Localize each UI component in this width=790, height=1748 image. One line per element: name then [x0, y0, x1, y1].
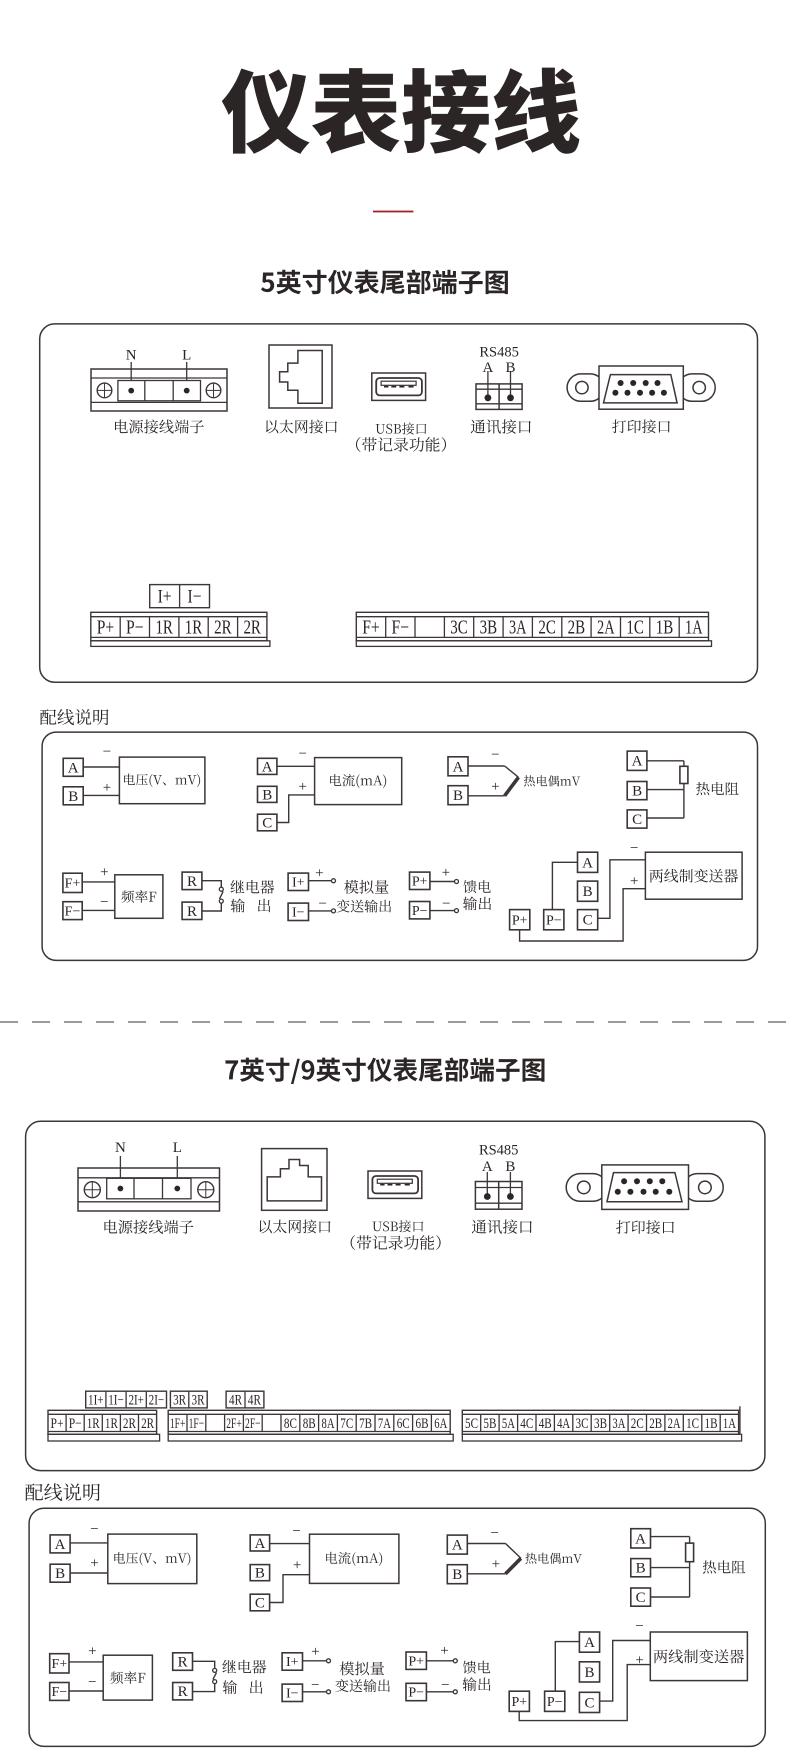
svg-text:7B: 7B: [359, 1416, 372, 1432]
svg-text:−: −: [318, 896, 326, 912]
svg-text:3R: 3R: [192, 1393, 205, 1409]
svg-text:−: −: [311, 1677, 319, 1693]
svg-text:1F−: 1F−: [189, 1416, 205, 1432]
svg-text:+: +: [100, 865, 108, 881]
svg-text:1A: 1A: [723, 1416, 736, 1432]
svg-text:A: A: [452, 1538, 463, 1554]
svg-text:6A: 6A: [434, 1416, 447, 1432]
svg-text:P−: P−: [412, 904, 428, 919]
svg-text:3B: 3B: [594, 1416, 607, 1432]
svg-text:+: +: [440, 1643, 448, 1659]
svg-text:3B: 3B: [480, 617, 498, 639]
svg-text:A: A: [55, 1537, 66, 1553]
svg-text:−: −: [103, 744, 111, 760]
svg-text:B: B: [55, 1566, 65, 1582]
svg-text:N: N: [126, 348, 137, 364]
svg-text:RS485: RS485: [479, 344, 519, 360]
svg-text:1C: 1C: [686, 1416, 699, 1432]
svg-text:−: −: [90, 1521, 98, 1537]
svg-text:2F+: 2F+: [226, 1416, 242, 1432]
svg-text:−: −: [630, 840, 638, 856]
svg-text:F−: F−: [392, 617, 410, 639]
svg-text:P+: P+: [511, 1695, 527, 1710]
svg-text:+: +: [442, 865, 450, 881]
svg-text:1F+: 1F+: [170, 1416, 186, 1432]
svg-text:−: −: [88, 1674, 96, 1690]
svg-text:R: R: [187, 874, 197, 890]
svg-text:8C: 8C: [284, 1416, 297, 1432]
svg-text:R: R: [178, 1684, 188, 1700]
svg-text:F+: F+: [52, 1657, 68, 1672]
svg-text:2A: 2A: [597, 617, 615, 639]
svg-text:P−: P−: [69, 1416, 82, 1432]
svg-text:A: A: [582, 855, 593, 871]
svg-text:−: −: [442, 896, 450, 912]
svg-text:1I+: 1I+: [88, 1392, 104, 1408]
svg-text:−: −: [298, 746, 306, 762]
svg-text:3C: 3C: [450, 617, 468, 639]
svg-text:A: A: [68, 760, 79, 776]
svg-text:P+: P+: [97, 617, 115, 639]
svg-text:A: A: [635, 1531, 646, 1547]
svg-text:I+: I+: [292, 875, 305, 890]
svg-text:P+: P+: [408, 1654, 424, 1669]
svg-text:3A: 3A: [509, 617, 527, 639]
svg-text:C: C: [636, 1590, 646, 1606]
svg-text:4C: 4C: [520, 1416, 533, 1432]
svg-text:2R: 2R: [123, 1416, 136, 1432]
svg-text:A: A: [453, 759, 464, 775]
svg-text:8A: 8A: [322, 1416, 335, 1432]
svg-text:6B: 6B: [416, 1416, 429, 1432]
svg-text:P+: P+: [412, 874, 428, 889]
svg-text:−: −: [441, 1677, 449, 1693]
svg-text:1B: 1B: [656, 617, 674, 639]
svg-text:+: +: [635, 1652, 643, 1668]
svg-text:1A: 1A: [685, 617, 703, 639]
svg-text:+: +: [293, 1557, 301, 1573]
svg-text:B: B: [636, 1561, 646, 1577]
svg-text:B: B: [255, 1566, 265, 1582]
svg-text:3A: 3A: [612, 1416, 625, 1432]
svg-text:+: +: [315, 865, 323, 881]
svg-text:I−: I−: [286, 1686, 299, 1701]
svg-text:A: A: [482, 360, 493, 376]
svg-text:−: −: [490, 1525, 498, 1541]
svg-text:5A: 5A: [502, 1416, 515, 1432]
svg-text:−: −: [292, 1523, 300, 1539]
svg-text:+: +: [311, 1644, 319, 1660]
svg-text:1R: 1R: [185, 617, 203, 639]
svg-text:P−: P−: [408, 1686, 424, 1701]
svg-text:A: A: [632, 754, 643, 770]
svg-text:A: A: [584, 1635, 595, 1651]
svg-text:1B: 1B: [705, 1416, 718, 1432]
svg-text:−: −: [100, 894, 108, 910]
svg-text:2R: 2R: [214, 617, 232, 639]
svg-text:C: C: [262, 816, 272, 832]
svg-text:6C: 6C: [397, 1416, 410, 1432]
svg-text:2I+: 2I+: [128, 1392, 144, 1408]
svg-text:2C: 2C: [538, 617, 556, 639]
svg-text:5C: 5C: [465, 1416, 478, 1432]
svg-text:P+: P+: [51, 1416, 64, 1432]
svg-text:C: C: [583, 913, 593, 929]
svg-text:3R: 3R: [173, 1393, 186, 1409]
svg-text:2R: 2R: [243, 617, 261, 639]
svg-text:8B: 8B: [303, 1416, 316, 1432]
svg-text:5B: 5B: [483, 1416, 496, 1432]
svg-text:B: B: [453, 788, 463, 804]
svg-text:B: B: [583, 884, 593, 900]
svg-text:−: −: [491, 747, 499, 763]
svg-text:2F−: 2F−: [245, 1416, 261, 1432]
svg-text:+: +: [492, 1557, 500, 1573]
svg-text:I+: I+: [286, 1655, 299, 1670]
svg-text:+: +: [491, 779, 499, 795]
svg-text:2B: 2B: [649, 1416, 662, 1432]
svg-text:3C: 3C: [576, 1416, 589, 1432]
svg-text:4R: 4R: [248, 1393, 261, 1409]
svg-text:2R: 2R: [141, 1416, 154, 1432]
svg-text:1R: 1R: [105, 1416, 118, 1432]
svg-text:B: B: [505, 360, 515, 376]
svg-text:F+: F+: [362, 617, 380, 639]
svg-text:B: B: [584, 1665, 594, 1681]
svg-text:1R: 1R: [155, 617, 173, 639]
svg-text:7A: 7A: [378, 1416, 391, 1432]
svg-text:+: +: [298, 779, 306, 795]
svg-text:4B: 4B: [539, 1416, 552, 1432]
svg-text:C: C: [584, 1695, 594, 1711]
svg-text:B: B: [68, 789, 78, 805]
svg-text:1I−: 1I−: [108, 1392, 124, 1408]
svg-text:I−: I−: [188, 586, 202, 607]
svg-text:L: L: [182, 348, 191, 364]
svg-text:F+: F+: [65, 877, 81, 892]
svg-text:P−: P−: [546, 913, 562, 928]
svg-text:+: +: [90, 1555, 98, 1571]
svg-text:P+: P+: [512, 913, 528, 928]
svg-text:A: A: [482, 1159, 493, 1175]
svg-text:P−: P−: [547, 1695, 563, 1710]
svg-text:B: B: [505, 1159, 515, 1175]
svg-text:4A: 4A: [557, 1416, 570, 1432]
svg-text:+: +: [103, 780, 111, 796]
svg-text:RS485: RS485: [479, 1143, 519, 1159]
svg-text:2A: 2A: [668, 1416, 681, 1432]
svg-text:R: R: [187, 904, 197, 920]
svg-text:1R: 1R: [87, 1416, 100, 1432]
svg-text:N: N: [115, 1140, 126, 1156]
svg-text:I+: I+: [158, 586, 172, 607]
svg-text:L: L: [173, 1140, 182, 1156]
svg-text:1C: 1C: [626, 617, 644, 639]
svg-text:R: R: [178, 1655, 188, 1671]
svg-text:I−: I−: [292, 905, 305, 920]
svg-text:B: B: [632, 784, 642, 800]
svg-text:2B: 2B: [568, 617, 586, 639]
svg-text:−: −: [635, 1618, 643, 1634]
svg-text:+: +: [88, 1643, 96, 1659]
svg-text:7C: 7C: [340, 1416, 353, 1432]
svg-text:B: B: [262, 787, 272, 803]
svg-text:2I−: 2I−: [149, 1392, 165, 1408]
svg-text:4R: 4R: [229, 1393, 242, 1409]
svg-text:2C: 2C: [631, 1416, 644, 1432]
svg-text:F−: F−: [65, 904, 81, 919]
svg-text:P−: P−: [126, 617, 144, 639]
svg-text:B: B: [452, 1567, 462, 1583]
svg-text:C: C: [255, 1596, 265, 1612]
svg-text:A: A: [254, 1536, 265, 1552]
svg-text:F−: F−: [52, 1685, 68, 1700]
svg-text:C: C: [632, 812, 642, 828]
svg-text:A: A: [262, 759, 273, 775]
svg-text:+: +: [630, 874, 638, 890]
